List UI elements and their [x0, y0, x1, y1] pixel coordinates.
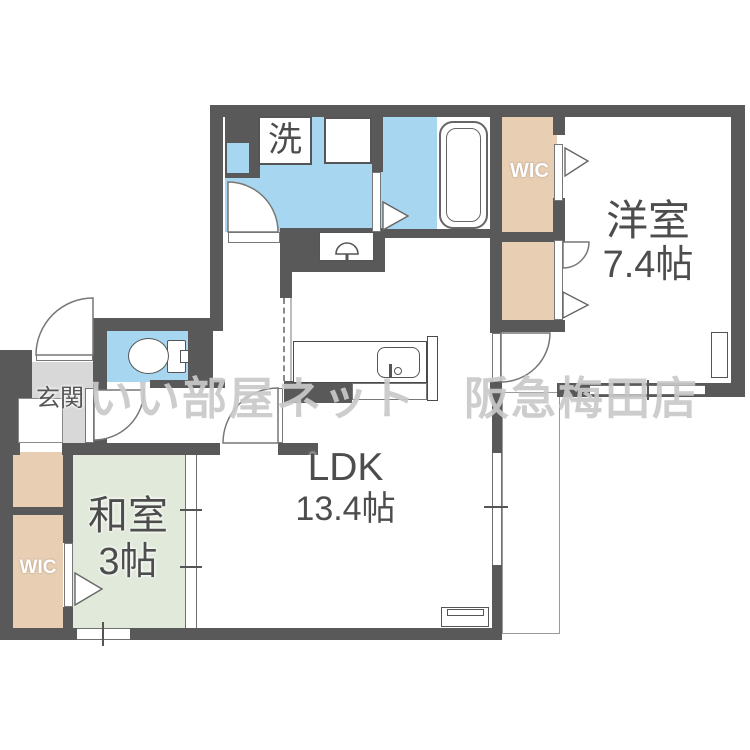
washroom-door-leaf	[228, 232, 280, 243]
washitsu-name: 和室	[88, 494, 168, 538]
balcony	[502, 392, 560, 634]
ldk-label: LDK 13.4帖	[268, 446, 423, 528]
window-ldk-balcony	[492, 453, 502, 565]
counter-board-inner	[447, 609, 484, 616]
bath-door-leaf	[372, 172, 381, 232]
genkan-label: 玄関	[22, 386, 98, 413]
wall	[210, 105, 223, 331]
wall	[0, 443, 13, 640]
wall	[63, 607, 73, 628]
laundry-label: 洗	[260, 118, 310, 163]
bedroom-closet-floor	[502, 240, 557, 320]
closet-door-leaf	[554, 240, 563, 320]
wall	[731, 105, 745, 397]
wall	[553, 113, 565, 135]
wall	[383, 229, 497, 238]
bathtub-inner	[446, 128, 481, 222]
wic-top-label: WIC	[502, 160, 557, 182]
wall	[12, 628, 77, 640]
vanity-unit	[324, 117, 372, 164]
watermark-text: いい部屋ネット 阪急梅田店	[88, 362, 699, 427]
window-tick	[102, 622, 104, 646]
wic-top-folding-door-icon	[565, 148, 588, 176]
wall	[130, 628, 502, 640]
wall	[490, 110, 502, 333]
floor-plan: 洗	[0, 0, 750, 750]
wall	[553, 198, 565, 232]
entrance-door-leaf	[36, 350, 93, 361]
ldk-name: LDK	[308, 446, 384, 489]
washroom-niche	[227, 143, 249, 173]
entrance-door-swing	[36, 298, 93, 355]
washitsu-label: 和室 3帖	[55, 493, 201, 585]
wall	[280, 272, 292, 298]
bedroom-size: 7.4帖	[565, 244, 731, 287]
wall-niche-basin	[319, 232, 374, 261]
ldk-size: 13.4帖	[268, 490, 423, 528]
washitsu-size: 3帖	[55, 540, 201, 585]
bedroom-label: 洋室 7.4帖	[565, 197, 731, 287]
window-tick	[484, 506, 508, 508]
wall	[13, 443, 20, 455]
wall	[372, 110, 383, 172]
window-bedroom-east	[711, 332, 728, 378]
wall	[502, 320, 565, 332]
wall	[62, 443, 220, 455]
closet-folding-door-icon	[563, 292, 588, 318]
bedroom-name: 洋室	[606, 197, 690, 244]
wic-left-label: WIC	[13, 557, 63, 578]
laundry-space: 洗	[258, 116, 312, 165]
